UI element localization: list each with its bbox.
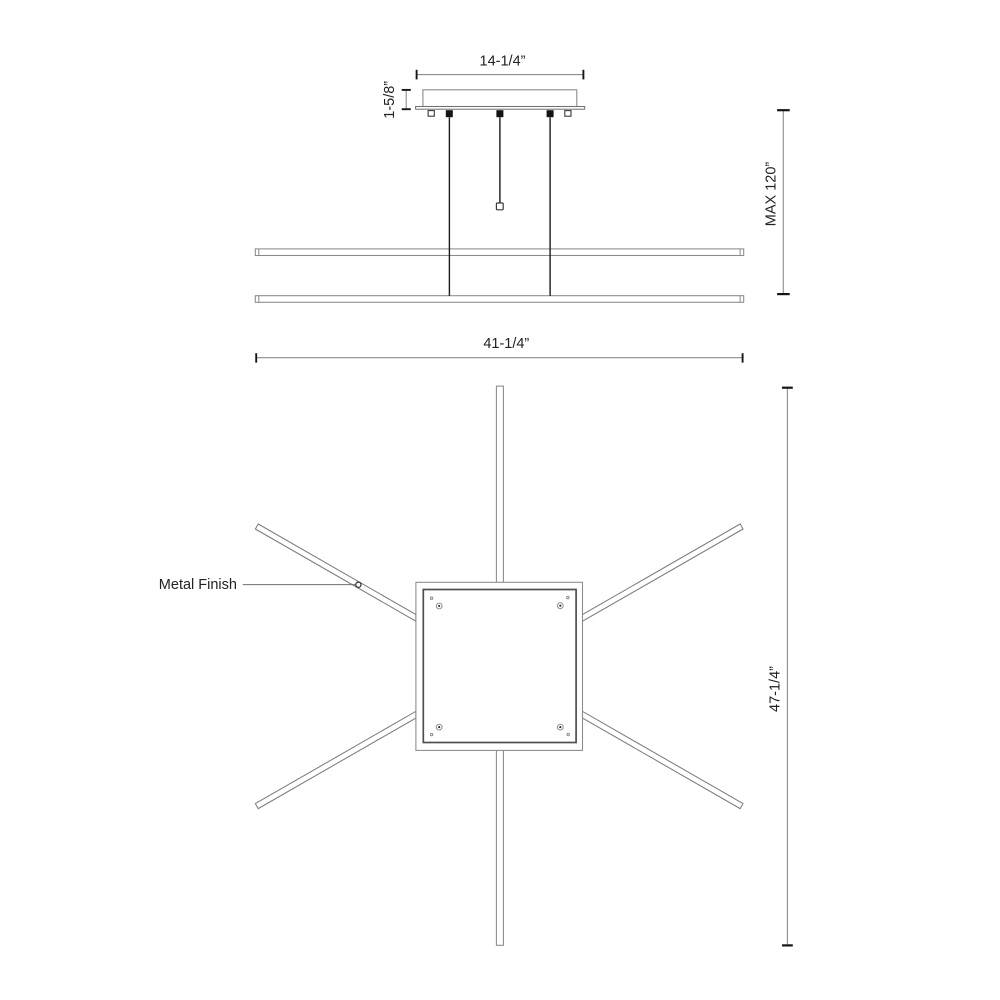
svg-text:1-5/8”: 1-5/8”: [382, 81, 398, 119]
svg-text:47-1/4”: 47-1/4”: [767, 666, 783, 712]
svg-text:MAX 120”: MAX 120”: [764, 162, 780, 227]
svg-text:Metal Finish: Metal Finish: [159, 577, 237, 593]
svg-text:41-1/4”: 41-1/4”: [483, 336, 529, 352]
svg-text:14-1/4”: 14-1/4”: [480, 54, 526, 70]
